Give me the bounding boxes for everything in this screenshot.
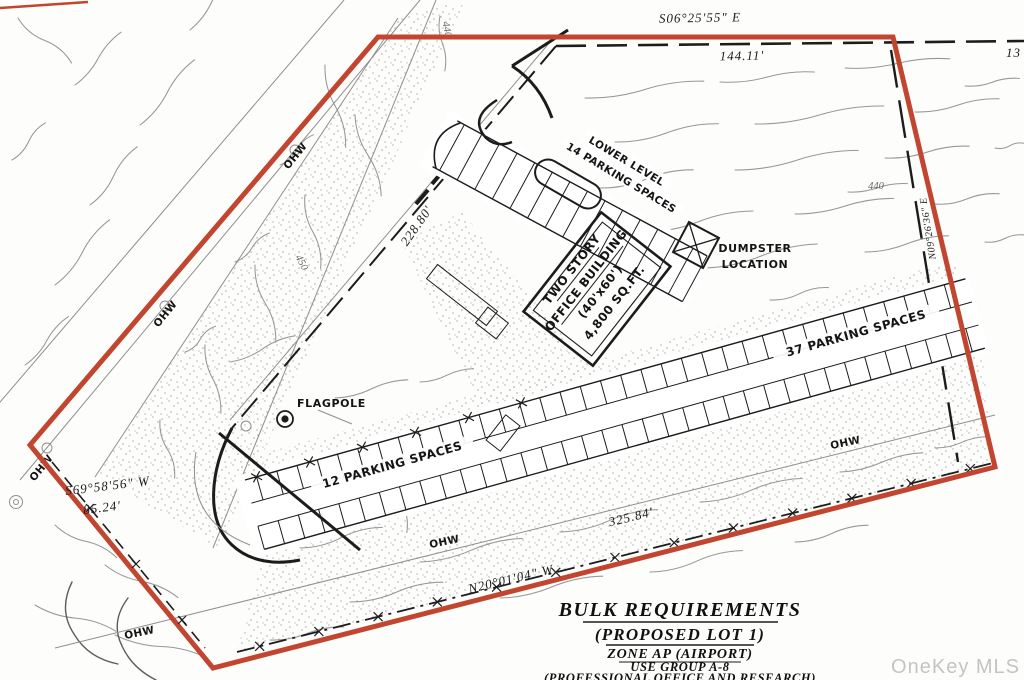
ohw-label: OHW bbox=[151, 298, 180, 329]
site-plan-canvas: OHW OHW OHW OHW OHW OHW 440 440 450 450 bbox=[0, 0, 1024, 680]
distance-northeast-fragment: 13 bbox=[1006, 45, 1021, 60]
watermark: OneKey MLS bbox=[891, 656, 1020, 678]
site-plan-drawing: OHW OHW OHW OHW OHW OHW 440 440 450 450 bbox=[0, 0, 1024, 680]
flagpole-label: FLAGPOLE bbox=[297, 397, 366, 410]
ohw-label: OHW bbox=[123, 624, 155, 642]
contour-440-label: 440 bbox=[868, 181, 885, 192]
title-line1: BULK REQUIREMENTS bbox=[558, 599, 802, 621]
distance-southwest-label: 85.24' bbox=[82, 498, 122, 518]
bearing-east-label: N09°26'36" E bbox=[918, 197, 939, 262]
manhole-icon bbox=[10, 496, 23, 509]
title-line2: (PROPOSED LOT 1) bbox=[595, 625, 765, 644]
dumpster-line2: LOCATION bbox=[722, 258, 789, 271]
flagpole-symbol bbox=[277, 410, 352, 427]
bearing-north-label: S06°25'55" E bbox=[659, 9, 741, 25]
boundary-fragment bbox=[0, 2, 88, 8]
dumpster-line1: DUMPSTER bbox=[718, 242, 791, 255]
distance-north-label: 144.11' bbox=[720, 48, 765, 64]
title-block: BULK REQUIREMENTS (PROPOSED LOT 1) ZONE … bbox=[544, 599, 816, 680]
manhole-icon bbox=[14, 500, 19, 505]
title-line5: (PROFESSIONAL OFFICE AND RESEARCH) bbox=[544, 671, 816, 680]
